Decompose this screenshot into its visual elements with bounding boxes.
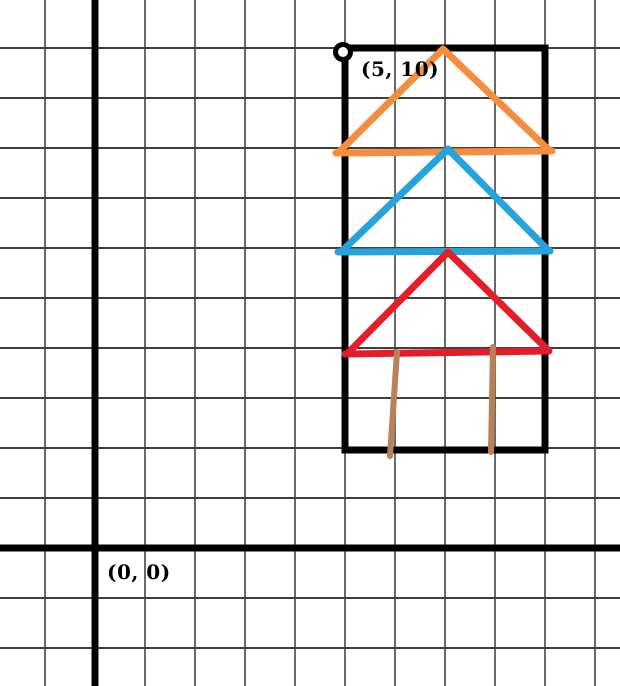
red-tree-base	[345, 351, 549, 354]
origin-label: (0, 0)	[107, 560, 171, 584]
red-tree-sides	[348, 252, 548, 353]
coordinate-plane	[0, 0, 620, 686]
corner-point-label: (5, 10)	[361, 57, 439, 81]
graph-paper-figure: (0, 0) (5, 10)	[0, 0, 620, 686]
corner-point-marker	[336, 45, 351, 60]
trunk-right-line	[491, 347, 493, 452]
